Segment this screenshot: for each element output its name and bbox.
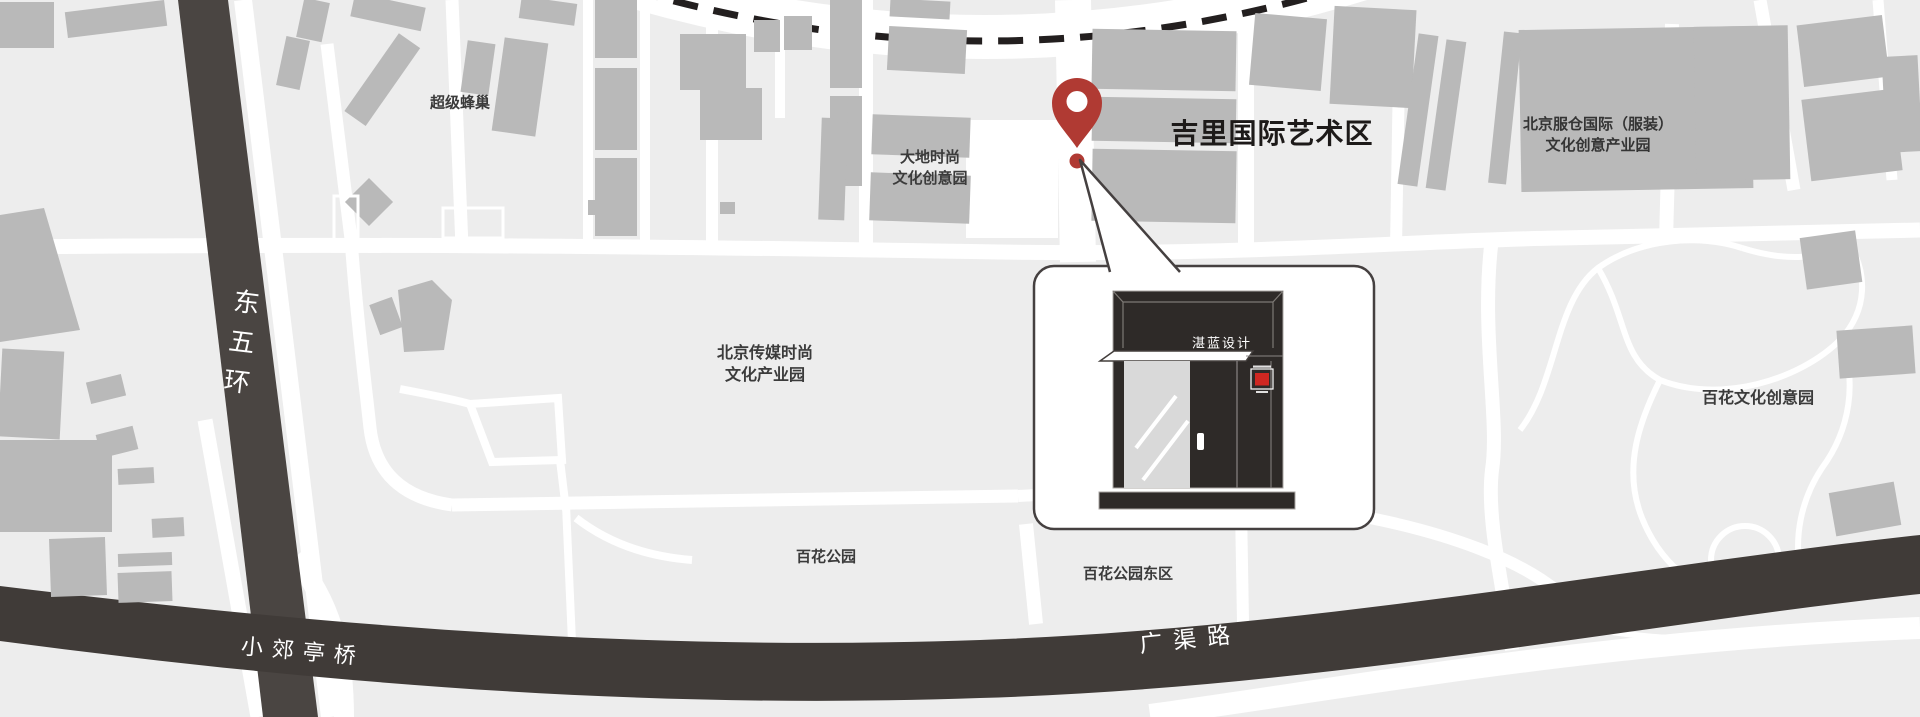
label-chuanmei-line2: 文化产业园 [717, 365, 813, 387]
label-baihua-park: 百花公园 [796, 546, 856, 567]
building-block [49, 537, 107, 597]
building-block [1882, 55, 1920, 153]
storefront-illustration [1099, 291, 1295, 509]
building-block [117, 571, 172, 603]
building-block [754, 20, 780, 52]
logo-text-mark [1253, 366, 1271, 368]
label-dadi-line2: 文化创意园 [892, 168, 967, 189]
building-block [118, 552, 172, 567]
label-chuanmei: 北京传媒时尚 文化产业园 [717, 343, 813, 387]
building-block [0, 348, 64, 439]
building-block [1800, 230, 1863, 289]
label-fucang: 北京服仓国际（服装） 文化创意产业园 [1523, 114, 1673, 156]
building-block [595, 0, 637, 58]
building-block [0, 440, 112, 532]
building-block [1329, 6, 1416, 108]
building-block [818, 118, 848, 221]
label-baihua-creative-park: 百花文化创意园 [1702, 384, 1814, 408]
label-jili-art-district-title: 吉里国际艺术区 [1170, 112, 1373, 152]
building-block [1797, 15, 1890, 87]
pin-hole [1067, 91, 1088, 112]
label-super-hive: 超级蜂巢 [430, 92, 490, 113]
building-block [830, 0, 862, 88]
label-chuanmei-line1: 北京传媒时尚 [717, 343, 813, 365]
building-block [595, 158, 637, 236]
building-block [890, 0, 951, 20]
awning-ledge [1100, 351, 1253, 361]
storefront-sign-text: 湛蓝设计 [1192, 333, 1252, 352]
storefront-base [1099, 492, 1295, 509]
building-block [1836, 325, 1915, 378]
label-dadi: 大地时尚 文化创意园 [892, 147, 967, 189]
park-east-road [1026, 524, 1036, 624]
label-fucang-line2: 文化创意产业园 [1523, 135, 1673, 156]
label-dadi-line1: 大地时尚 [892, 147, 967, 168]
building-block [118, 467, 155, 485]
building-block [680, 34, 746, 90]
building-block [0, 2, 54, 48]
building-block [1694, 25, 1791, 181]
map-graphics [0, 0, 1920, 717]
building-block [784, 16, 812, 50]
inner-horizontal-road [452, 496, 1018, 505]
door-handle [1197, 433, 1204, 450]
glass-window [1124, 361, 1190, 488]
building-block [700, 88, 762, 140]
map-canvas: 超级蜂巢 大地时尚 文化创意园 吉里国际艺术区 北京服仓国际（服装） 文化创意产… [0, 0, 1920, 717]
label-fucang-line1: 北京服仓国际（服装） [1523, 114, 1673, 135]
building-block [720, 202, 735, 214]
building-block [152, 517, 185, 538]
building-block [595, 68, 637, 150]
building-block [887, 26, 967, 74]
building-block [1249, 13, 1327, 91]
logo-red-square [1255, 373, 1269, 386]
plaza-area [966, 120, 1058, 238]
label-baihua-park-east: 百花公园东区 [1083, 563, 1173, 584]
building-block [588, 200, 614, 215]
logo-text-mark [1256, 391, 1268, 393]
building-block [1091, 29, 1236, 92]
